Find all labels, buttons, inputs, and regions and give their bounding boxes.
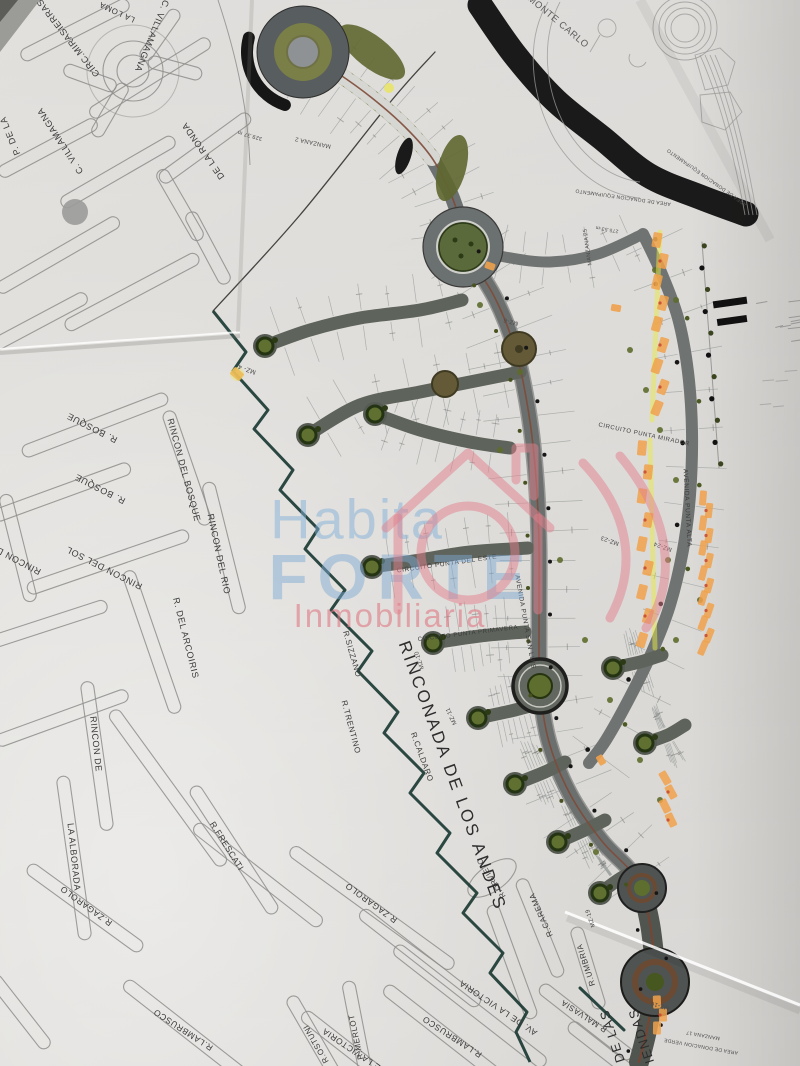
map-decor: [666, 539, 667, 543]
map-decor: [548, 613, 552, 617]
map-decor: [569, 764, 573, 768]
map-decor: [653, 1021, 661, 1034]
map-decor: [379, 558, 385, 564]
map-decor: [673, 637, 679, 643]
map-decor: [559, 799, 563, 803]
map-decor: [643, 566, 646, 569]
map-decor: [385, 293, 389, 294]
map-decor: [643, 387, 649, 393]
map-decor: [589, 843, 593, 847]
map-decor: [708, 330, 713, 335]
map-decor: [704, 609, 707, 612]
map-decor: [643, 470, 646, 473]
map-decor: [673, 477, 679, 483]
map-decor: [626, 677, 631, 682]
map-decor: [509, 378, 513, 382]
map-decor: [524, 346, 528, 350]
map-decor: [637, 735, 653, 751]
map-decor: [505, 296, 509, 300]
map-decor: [624, 882, 628, 886]
map-decor: [658, 301, 661, 304]
map-decor: [607, 697, 613, 703]
map-decor: [476, 420, 480, 421]
map-decor: [666, 818, 669, 821]
map-decor: [585, 747, 590, 752]
map-decor: [637, 757, 643, 763]
map-decor: [665, 557, 671, 563]
map-decor: [562, 467, 563, 473]
map-decor: [535, 399, 539, 403]
site-plan-photo: CIRC.MIRASIERRAS LA LOMA C. VILLAMAGNA P…: [0, 0, 800, 1066]
map-decor: [658, 385, 661, 388]
map-decor: [685, 316, 690, 321]
map-decor: [657, 427, 663, 433]
map-decor: [658, 602, 663, 607]
map-decor: [477, 249, 481, 253]
map-decor: [703, 309, 708, 314]
map-decor: [486, 655, 494, 656]
map-decor: [582, 637, 588, 643]
map-decor: [704, 509, 707, 512]
map-decor: [498, 417, 499, 422]
map-decor: [706, 353, 711, 358]
map-decor: [704, 634, 707, 637]
map-decor: [592, 885, 608, 901]
map-decor: [364, 559, 380, 575]
map-decor: [646, 973, 664, 991]
map-decor: [637, 440, 647, 456]
map-decor: [627, 1049, 631, 1053]
map-decor: [472, 283, 476, 287]
map-decor: [623, 722, 628, 727]
map-decor: [715, 418, 720, 423]
map-decor: [538, 748, 542, 752]
map-decor: [523, 481, 527, 485]
map-decor: [528, 694, 532, 698]
map-decor: [624, 848, 628, 852]
map-decor: [607, 884, 613, 890]
map-decor: [704, 534, 707, 537]
map-decor: [315, 426, 321, 432]
map-decor: [459, 254, 464, 259]
map-decor: [699, 490, 707, 506]
map-decor: [655, 891, 659, 895]
map-decor: [658, 259, 661, 262]
map-decor: [526, 586, 530, 590]
map-decor: [636, 928, 640, 932]
map-decor: [565, 833, 571, 839]
map-decor: [384, 83, 394, 93]
map-decor: [548, 560, 552, 564]
map-decor: [432, 371, 458, 397]
map-decor: [287, 36, 319, 68]
map-decor: [675, 523, 680, 528]
map-decor: [702, 243, 707, 248]
map-decor: [605, 660, 621, 676]
map-decor: [643, 614, 646, 617]
map-decor: [704, 559, 707, 562]
map-decor: [300, 427, 316, 443]
map-decor: [431, 580, 435, 581]
map-decor: [627, 347, 633, 353]
map-decor: [497, 447, 503, 453]
map-decor: [592, 809, 596, 813]
map-decor: [494, 329, 498, 333]
map-decor: [620, 659, 626, 665]
map-decor: [639, 987, 643, 991]
map-decor: [257, 338, 273, 354]
map-decor: [718, 461, 723, 466]
map-decor: [550, 834, 566, 850]
map-decor: [704, 584, 707, 587]
map-decor: [685, 567, 690, 572]
map-decor: [367, 406, 383, 422]
map-decor: [62, 199, 88, 225]
map-decor: [557, 557, 563, 563]
map-decor: [712, 374, 717, 379]
map-decor: [469, 242, 474, 247]
map-decor: [522, 775, 528, 781]
map-decor: [697, 399, 702, 404]
map-decor: [526, 534, 530, 538]
map-decor: [652, 734, 658, 740]
map-decor: [634, 880, 650, 896]
map-decor: [697, 483, 702, 488]
map-decor: [666, 790, 669, 793]
map-decor: [658, 343, 661, 346]
map-decor: [542, 453, 546, 457]
map-decor: [477, 302, 483, 308]
map-decor: [517, 369, 523, 375]
map-decor: [518, 429, 522, 433]
map-decor: [382, 405, 388, 411]
map-decor: [658, 1013, 661, 1016]
map-decor: [643, 518, 646, 521]
map-decor: [546, 506, 550, 510]
map-decor: [699, 265, 704, 270]
map-decor: [549, 665, 553, 669]
map-decor: [673, 297, 679, 303]
map-decor: [675, 360, 680, 365]
map-decor: [709, 396, 714, 401]
map-decor: [439, 223, 487, 271]
map-decor: [515, 345, 523, 353]
map-decor: [470, 710, 486, 726]
map-decor: [453, 238, 458, 243]
map-decor: [507, 776, 523, 792]
map-decor: [660, 647, 665, 652]
map-decor: [405, 542, 409, 543]
map-decor: [272, 337, 278, 343]
map-decor: [485, 709, 491, 715]
map-decor: [593, 849, 599, 855]
map-decor: [712, 440, 717, 445]
map-decor: [554, 716, 558, 720]
map-decor: [705, 287, 710, 292]
